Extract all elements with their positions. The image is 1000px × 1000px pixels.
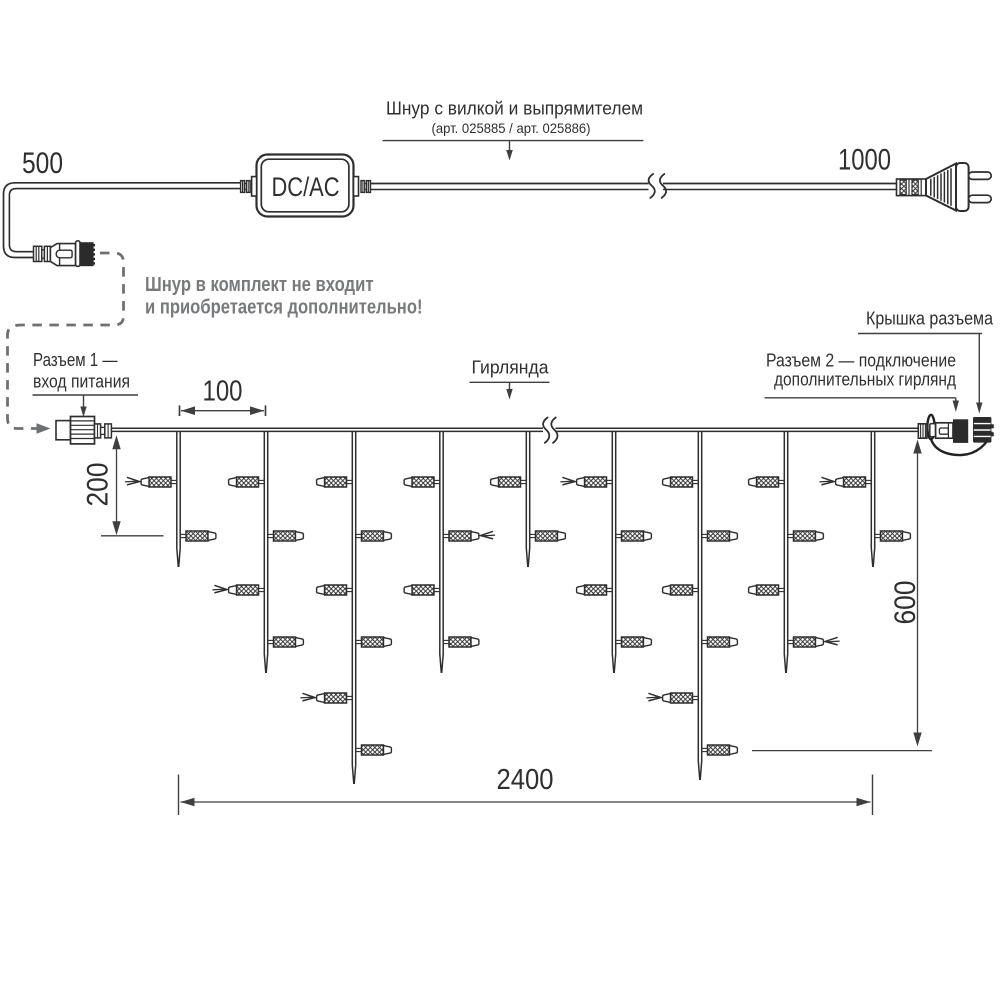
svg-text:2400: 2400	[497, 764, 554, 796]
svg-text:(арт. 025885 / арт. 025886): (арт. 025885 / арт. 025886)	[432, 121, 591, 136]
svg-text:вход питания: вход питания	[33, 372, 130, 392]
svg-text:100: 100	[203, 376, 243, 408]
svg-text:DC/AC: DC/AC	[272, 172, 340, 202]
svg-text:500: 500	[22, 147, 63, 180]
svg-text:Разъем 2 — подключение: Разъем 2 — подключение	[766, 351, 956, 371]
svg-text:200: 200	[82, 463, 115, 507]
svg-text:Шнур с вилкой и выпрямителем: Шнур с вилкой и выпрямителем	[386, 98, 643, 119]
svg-text:Шнур в комплект не входит: Шнур в комплект не входит	[145, 273, 374, 296]
svg-text:Разъем 1 —: Разъем 1 —	[33, 350, 118, 370]
svg-text:дополнительных гирлянд: дополнительных гирлянд	[774, 370, 956, 390]
svg-text:Гирлянда: Гирлянда	[472, 357, 550, 378]
svg-text:и приобретается дополнительно!: и приобретается дополнительно!	[145, 296, 423, 319]
svg-text:Крышка разъема: Крышка разъема	[866, 309, 994, 329]
svg-text:1000: 1000	[838, 144, 891, 177]
